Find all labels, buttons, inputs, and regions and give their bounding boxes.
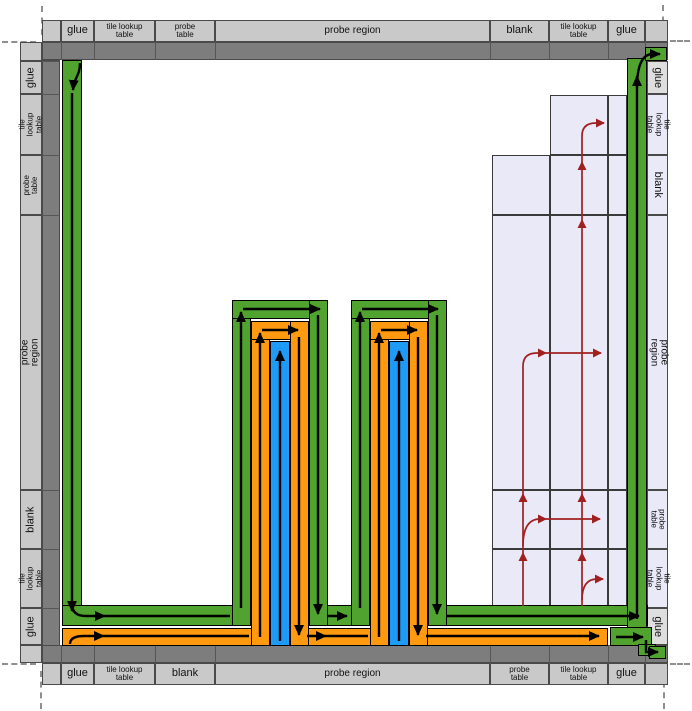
probe-grid-cell <box>492 155 550 215</box>
frame-bottom-probe-region: probe region <box>215 663 490 685</box>
frame-right-probe-region: probe region <box>647 215 668 490</box>
frame-bottom-probe-table: probe table <box>490 663 549 685</box>
band-tick <box>490 645 491 663</box>
frame-right-tile-lookup-table-2: tile lookup table <box>647 549 668 608</box>
band-tick <box>42 549 60 550</box>
band-tick <box>94 42 95 60</box>
probe-grid-cell <box>608 490 627 549</box>
frame-left-probe-region: probe region <box>20 215 42 490</box>
probe-grid-cell <box>550 155 608 215</box>
frame-top-tile-lookup-table: tile lookup table <box>94 20 155 42</box>
green-path-right-vertical <box>627 58 647 628</box>
frame-band-bottom <box>42 645 668 663</box>
green-path-left-vertical <box>62 60 82 626</box>
probe-grid-cell <box>550 490 608 549</box>
tower2-green-left <box>351 300 370 626</box>
frame-right-glue: glue <box>647 61 668 94</box>
band-tick <box>549 42 550 60</box>
tower1-green-right <box>309 300 328 626</box>
frame-top-probe-table: probe table <box>155 20 215 42</box>
frame-top-tile-lookup-table-2: tile lookup table <box>549 20 608 42</box>
band-tick <box>490 42 491 60</box>
tower1-blue <box>270 341 290 646</box>
frame-bottom-glue: glue <box>61 663 94 685</box>
green-path-top-right-exit <box>645 47 667 61</box>
orange-path-bottom-horizontal <box>62 628 608 646</box>
frame-bottom-tile-lookup-table: tile lookup table <box>94 663 155 685</box>
green-path-bottom-right-end <box>649 646 666 659</box>
band-tick <box>215 645 216 663</box>
probe-grid-cell <box>608 215 627 490</box>
frame-bottom-glue-2: glue <box>608 663 645 685</box>
frame-top-blank: blank <box>490 20 549 42</box>
band-tick <box>94 645 95 663</box>
frame-bottom-blank: blank <box>155 663 215 685</box>
dashed-guide <box>2 663 36 665</box>
frame-right-probe-table: probe table <box>647 490 668 549</box>
probe-grid-cell <box>608 95 627 155</box>
frame-top-glue: glue <box>61 20 94 42</box>
frame-left-corner-2 <box>20 645 42 663</box>
tower2-orange-right <box>409 321 428 646</box>
tower2-green-right <box>428 300 447 626</box>
frame-top-corner-2 <box>645 20 668 42</box>
frame-top-corner <box>42 20 61 42</box>
band-tick <box>155 42 156 60</box>
tower2-blue <box>389 341 409 646</box>
probe-grid-cell <box>492 215 550 490</box>
frame-band-left <box>42 60 60 663</box>
band-tick <box>42 155 60 156</box>
frame-left-glue-2: glue <box>20 608 42 645</box>
band-tick <box>549 645 550 663</box>
frame-left-glue: glue <box>20 61 42 94</box>
probe-grid-cell <box>550 549 608 608</box>
band-tick <box>42 215 60 216</box>
frame-left-tile-lookup-table: tile lookup table <box>20 94 42 155</box>
frame-right-blank: blank <box>647 155 668 215</box>
tower2-orange-left <box>370 321 389 646</box>
frame-right-tile-lookup-table: tile lookup table <box>647 94 668 155</box>
tile-assembly-diagram: glue tile lookup table probe table probe… <box>0 0 692 711</box>
probe-grid-cell <box>608 549 627 608</box>
frame-left-blank: blank <box>20 490 42 549</box>
band-tick <box>42 61 60 62</box>
frame-left-probe-table: probe table <box>20 155 42 215</box>
dashed-guide <box>670 663 690 665</box>
probe-grid-cell <box>492 549 550 608</box>
band-tick <box>61 42 62 60</box>
frame-left-corner <box>20 42 42 61</box>
frame-bottom-corner <box>42 663 61 685</box>
tower1-green-left <box>232 300 251 626</box>
frame-band-top <box>42 42 668 60</box>
probe-grid-cell <box>550 215 608 490</box>
probe-grid-cell <box>550 95 608 155</box>
frame-left-tile-lookup-table-2: tile lookup table <box>20 549 42 608</box>
band-tick <box>42 608 60 609</box>
band-tick <box>42 490 60 491</box>
band-tick <box>215 42 216 60</box>
frame-top-probe-region: probe region <box>215 20 490 42</box>
dashed-guide <box>670 40 690 42</box>
band-tick <box>61 645 62 663</box>
frame-top-glue-2: glue <box>608 20 645 42</box>
probe-grid-cell <box>492 490 550 549</box>
probe-grid-cell <box>608 155 627 215</box>
band-tick <box>42 94 60 95</box>
band-tick <box>608 645 609 663</box>
tower1-orange-right <box>290 321 309 646</box>
band-tick <box>155 645 156 663</box>
band-tick <box>608 42 609 60</box>
frame-bottom-corner-2 <box>645 663 668 685</box>
tower1-orange-left <box>251 321 270 646</box>
frame-bottom-tile-lookup-table-2: tile lookup table <box>549 663 608 685</box>
